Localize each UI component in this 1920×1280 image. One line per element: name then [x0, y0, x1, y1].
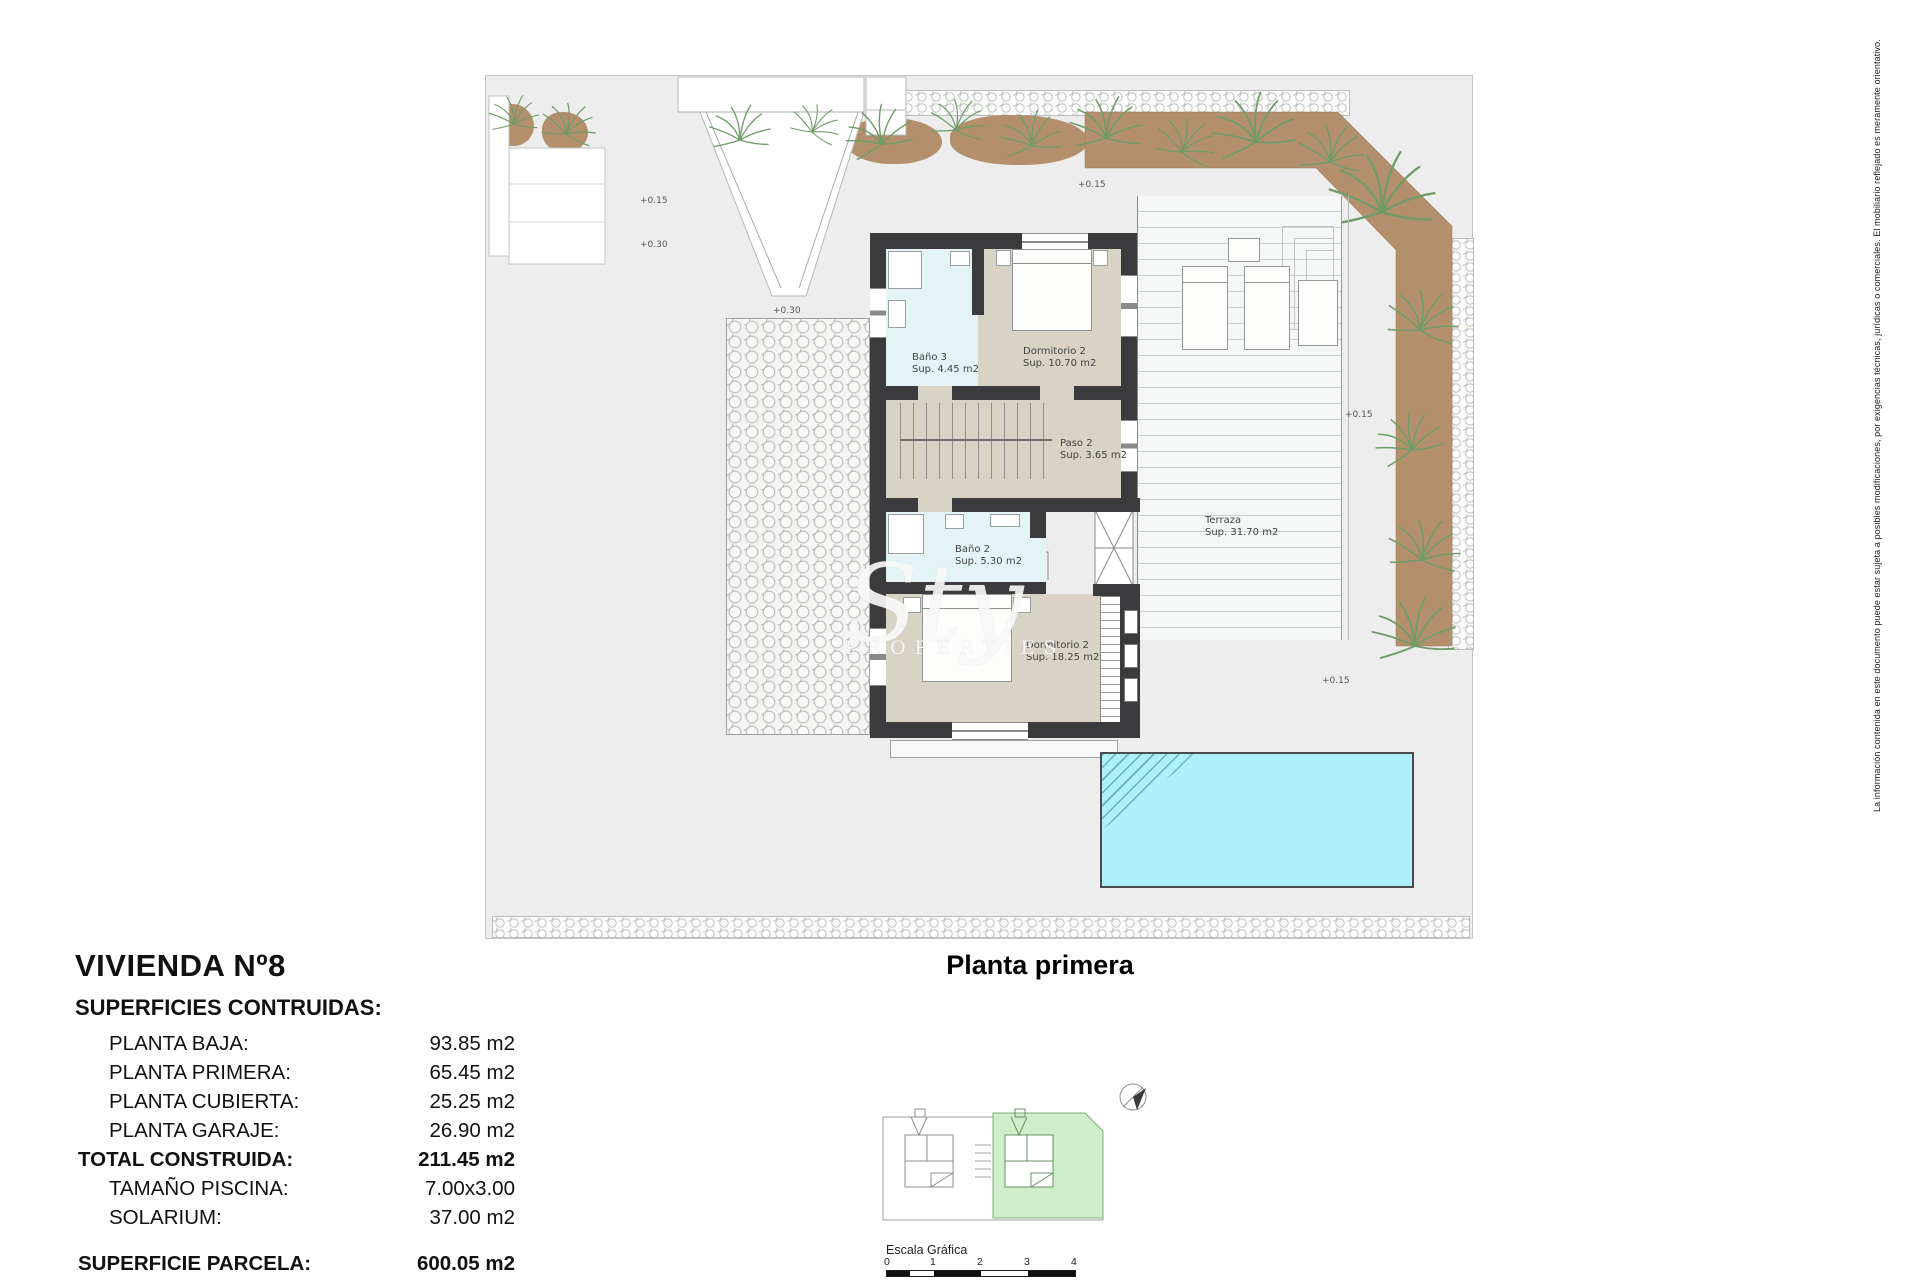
- nightstand: [996, 250, 1011, 266]
- room-area: Sup. 5.30 m2: [955, 556, 1022, 568]
- nightstand: [903, 597, 921, 613]
- staircase-rail: [900, 439, 1052, 441]
- surface-row: PLANTA GARAJE: 26.90 m2: [75, 1116, 515, 1145]
- stone-paving: [726, 318, 870, 735]
- surface-value: 211.45 m2: [395, 1145, 515, 1174]
- nightstand: [1013, 597, 1031, 613]
- surfaces-table: VIVIENDA Nº8 SUPERFICIES CONTRUIDAS: PLA…: [75, 948, 515, 1021]
- staircase: [900, 403, 1052, 479]
- room-name: Dormitorio 2: [1026, 640, 1099, 652]
- door-opening: [918, 498, 952, 512]
- disclaimer-text: La información contenida en este documen…: [1872, 22, 1882, 812]
- toilet: [945, 514, 964, 529]
- driveway: [678, 77, 864, 296]
- surface-row: SOLARIUM: 37.00 m2: [75, 1203, 515, 1232]
- outdoor-sofa: [1298, 280, 1338, 346]
- wall: [870, 233, 1137, 249]
- scale-tick: 1: [930, 1256, 936, 1268]
- room-name: Paso 2: [1060, 438, 1127, 450]
- room-label-terraza: Terraza Sup. 31.70 m2: [1205, 515, 1278, 539]
- level-marker: +0.15: [1322, 676, 1350, 686]
- room-label-dormitorio2-up: Dormitorio 2 Sup. 10.70 m2: [1023, 346, 1096, 370]
- surface-row: PLANTA PRIMERA: 65.45 m2: [75, 1058, 515, 1087]
- shaft-hatch: [1095, 510, 1133, 586]
- level-marker: +0.30: [640, 240, 668, 250]
- room-area: Sup. 10.70 m2: [1023, 358, 1096, 370]
- scale-tick: 2: [977, 1256, 983, 1268]
- wall: [886, 582, 1046, 594]
- scale-tick: 0: [884, 1256, 890, 1268]
- surface-label: PLANTA PRIMERA:: [75, 1058, 395, 1087]
- surface-row: PLANTA BAJA: 93.85 m2: [75, 1029, 515, 1058]
- room-name: Terraza: [1205, 515, 1278, 527]
- wall: [870, 386, 886, 514]
- sun-lounger: [1182, 266, 1228, 350]
- door-opening: [1040, 386, 1074, 400]
- surface-label: TAMAÑO PISCINA:: [75, 1174, 395, 1203]
- scale-bar: [886, 1270, 1076, 1277]
- surface-row-total: TOTAL CONSTRUIDA: 211.45 m2: [75, 1145, 515, 1174]
- shower: [888, 514, 924, 554]
- left-steps: [489, 96, 605, 264]
- bed: [922, 594, 1012, 682]
- wall-partition: [972, 249, 984, 315]
- room-label-bano3: Baño 3 Sup. 4.45 m2: [912, 352, 979, 376]
- surface-label: PLANTA GARAJE:: [75, 1116, 395, 1145]
- wall-partition: [1030, 512, 1046, 538]
- window: [870, 628, 886, 686]
- sink: [888, 300, 906, 328]
- surface-value: 600.05 m2: [395, 1249, 515, 1278]
- surface-value: 65.45 m2: [395, 1058, 515, 1087]
- room-name: Baño 3: [912, 352, 979, 364]
- surface-label: PLANTA BAJA:: [75, 1029, 395, 1058]
- nightstand: [1093, 250, 1108, 266]
- room-area: Sup. 4.45 m2: [912, 364, 979, 376]
- balcony-edge: [890, 740, 1118, 758]
- window: [1121, 275, 1137, 337]
- window: [870, 288, 886, 338]
- surface-row: TAMAÑO PISCINA: 7.00x3.00: [75, 1174, 515, 1203]
- door-opening: [918, 386, 952, 400]
- scale-tick: 4: [1071, 1256, 1077, 1268]
- wall: [870, 498, 886, 738]
- room-name: Dormitorio 2: [1023, 346, 1096, 358]
- surface-value: 37.00 m2: [395, 1203, 515, 1232]
- room-label-paso2: Paso 2 Sup. 3.65 m2: [1060, 438, 1127, 462]
- sink: [990, 514, 1020, 527]
- dwelling-title: VIVIENDA Nº8: [75, 948, 515, 984]
- surfaces-heading: SUPERFICIES CONTRUIDAS:: [75, 995, 515, 1021]
- level-marker: +0.15: [1345, 410, 1373, 420]
- wall: [1093, 498, 1140, 512]
- room-label-bano2: Baño 2 Sup. 5.30 m2: [955, 544, 1022, 568]
- surface-label: PLANTA CUBIERTA:: [75, 1087, 395, 1116]
- shower: [888, 251, 922, 289]
- plan-sheet: Baño 3 Sup. 4.45 m2 Dormitorio 2 Sup. 10…: [0, 0, 1920, 1280]
- closet-slot: [1124, 678, 1138, 702]
- surface-label: TOTAL CONSTRUIDA:: [75, 1145, 395, 1174]
- room-label-dormitorio2-low: Dormitorio 2 Sup. 18.25 m2: [1026, 640, 1099, 664]
- level-marker: +0.15: [1078, 180, 1106, 190]
- surface-value: 93.85 m2: [395, 1029, 515, 1058]
- sun-lounger: [1244, 266, 1290, 350]
- room-area: Sup. 3.65 m2: [1060, 450, 1127, 462]
- surface-label: SUPERFICIE PARCELA:: [75, 1249, 395, 1278]
- surface-value: 25.25 m2: [395, 1087, 515, 1116]
- keyplan: [875, 1075, 1165, 1255]
- plan-title: Planta primera: [860, 950, 1220, 981]
- room-area: Sup. 31.70 m2: [1205, 527, 1278, 539]
- surface-row-parcela: SUPERFICIE PARCELA: 600.05 m2: [75, 1249, 515, 1278]
- level-marker: +0.15: [640, 196, 668, 206]
- bed: [1012, 249, 1092, 331]
- surface-label: SOLARIUM:: [75, 1203, 395, 1232]
- closet-slot: [1124, 644, 1138, 668]
- closet-slot: [1124, 610, 1138, 634]
- wall: [1093, 584, 1140, 596]
- toilet: [950, 251, 970, 266]
- ladder-strip: [1100, 596, 1122, 728]
- scale-tick: 3: [1024, 1256, 1030, 1268]
- level-marker: +0.30: [773, 306, 801, 316]
- north-arrow-icon: [1120, 1084, 1146, 1110]
- surface-value: 26.90 m2: [395, 1116, 515, 1145]
- side-table: [1228, 238, 1260, 262]
- surface-value: 7.00x3.00: [395, 1174, 515, 1203]
- scale-label: Escala Gráfica: [886, 1243, 967, 1257]
- wall: [870, 386, 1137, 400]
- room-name: Baño 2: [955, 544, 1022, 556]
- surface-row: PLANTA CUBIERTA: 25.25 m2: [75, 1087, 515, 1116]
- window: [952, 722, 1028, 740]
- room-area: Sup. 18.25 m2: [1026, 652, 1099, 664]
